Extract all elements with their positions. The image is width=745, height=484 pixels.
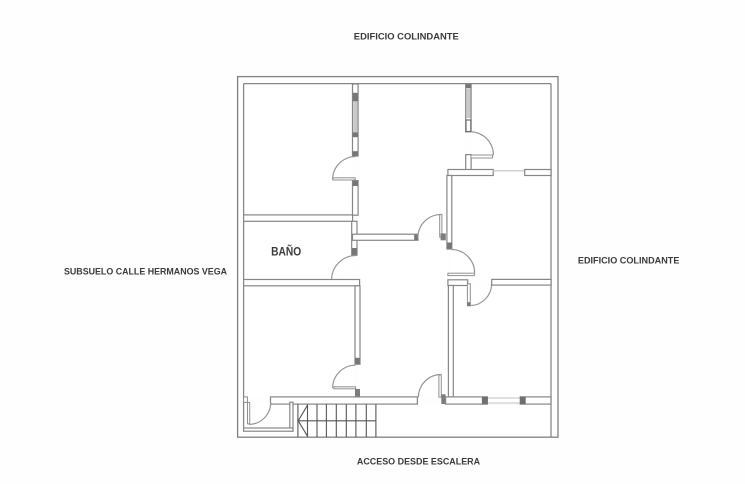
svg-text:EDIFICIO COLINDANTE: EDIFICIO COLINDANTE [578,256,680,267]
svg-text:EDIFICIO COLINDANTE: EDIFICIO COLINDANTE [354,31,459,42]
svg-text:BAÑO: BAÑO [271,246,301,259]
svg-text:SUBSUELO CALLE HERMANOS VEGA: SUBSUELO CALLE HERMANOS VEGA [64,266,227,277]
svg-text:ACCESO DESDE ESCALERA: ACCESO DESDE ESCALERA [357,456,480,467]
